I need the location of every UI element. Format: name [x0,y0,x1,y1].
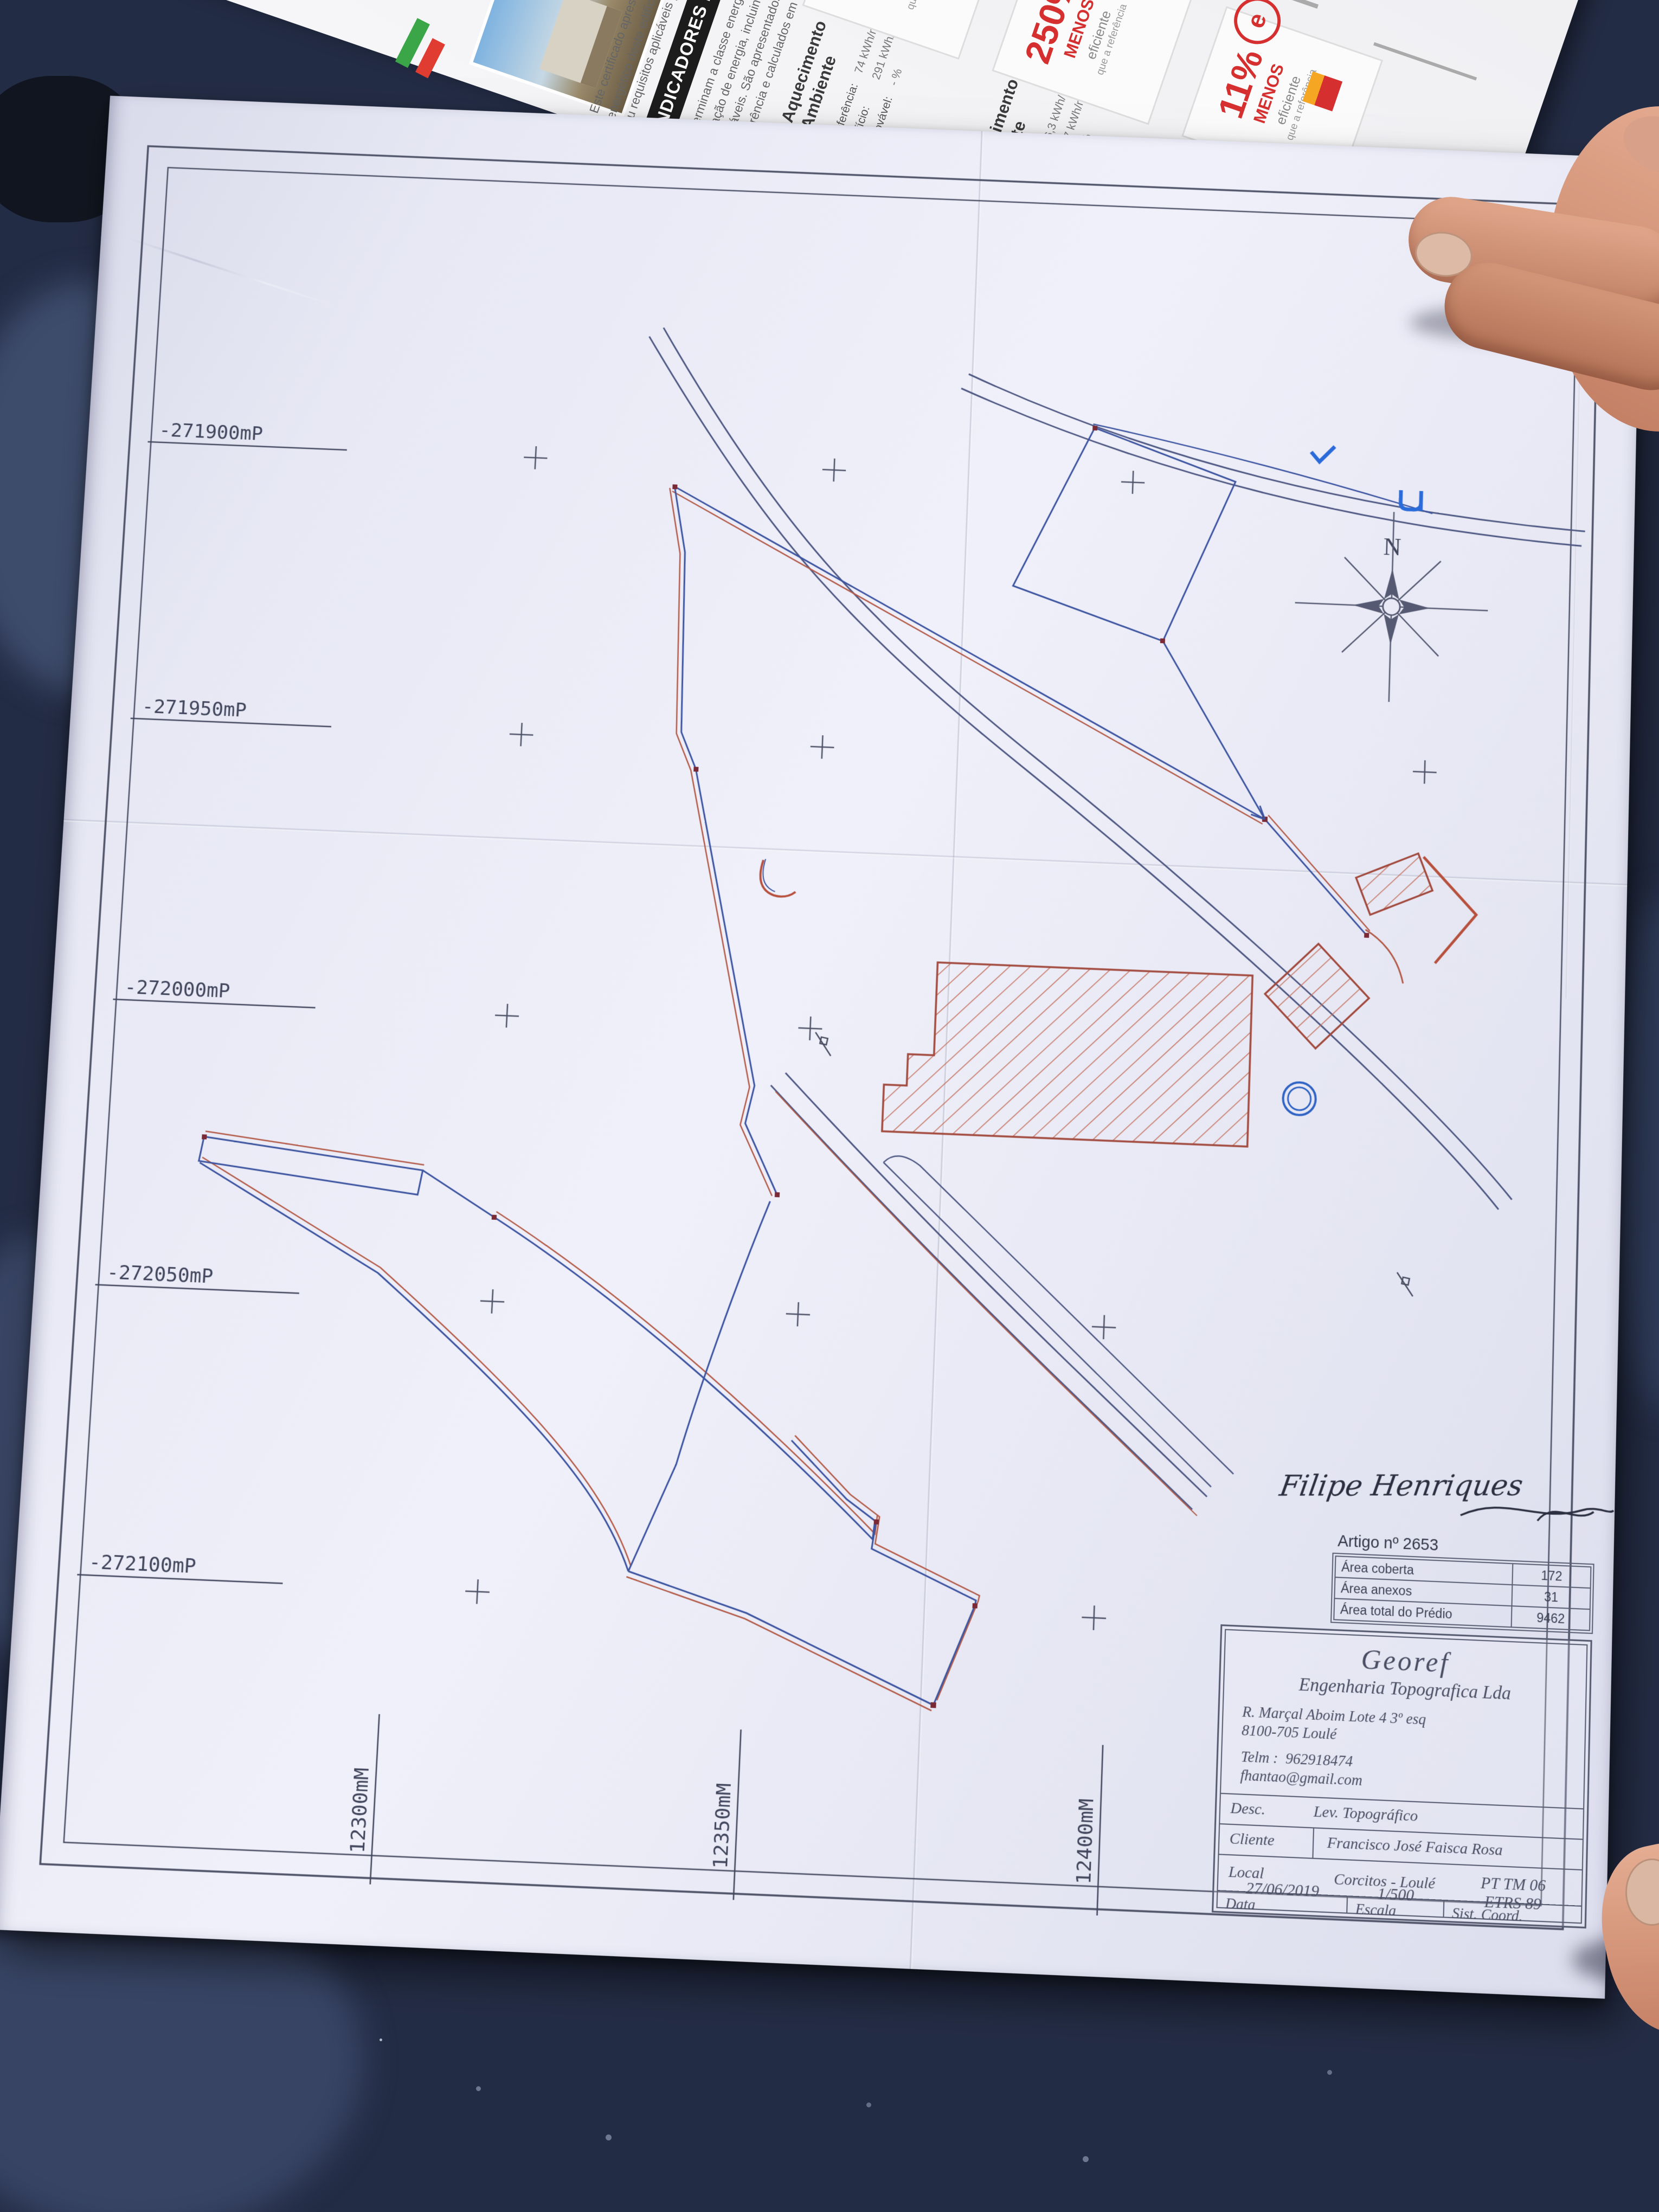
desc-value: Lev. Topográfico [1313,1803,1418,1826]
blue-u-mark [1400,490,1421,511]
escala-cell: Escala 1/500 [1347,1895,1444,1917]
signature-flourish [1461,1503,1613,1524]
grid-label-mm: 12400mM [1072,1798,1098,1885]
north-compass-rose: N [1292,508,1490,706]
red-segment [1364,930,1404,983]
data-cell: Data 27/06/2019 [1218,1890,1348,1913]
pole-symbol [814,1028,837,1057]
grid-label-mm: 12350mM [709,1783,736,1869]
renewable-value: - % [887,67,904,87]
road-red-companion [758,1091,1210,1516]
title-block: Georef Engenharia Topografica Lda R. Mar… [1212,1624,1592,1928]
cliente-label: Cliente [1219,1829,1313,1851]
phone-number: 962918474 [1285,1750,1353,1770]
coord-cell: Sist. Coord. PT TM 06 ETRS 89 [1444,1900,1581,1922]
grid-label-mp: -271950mP [142,695,247,722]
main-house-footprint [882,960,1252,1146]
coordinate-labels: -271900mP -271950mP -272000mP -272050mP … [59,419,1146,1915]
grid-label-mp: -272050mP [106,1261,214,1288]
pole-symbol [1395,1269,1418,1298]
cliente-value: Francisco José Faisca Rosa [1327,1834,1503,1860]
phone-label: Telm : [1240,1748,1278,1766]
surveyor-signature: Filipe Henriques [1277,1469,1623,1503]
road-lines [594,327,1589,1525]
well-circle [1283,1082,1316,1116]
annex-small-footprint [1355,851,1433,918]
grid-label-mp: -271900mP [158,419,263,445]
red-l-wall [1421,857,1478,965]
topographic-plan-sheet: -271900mP -271950mP -272000mP -272050mP … [0,96,1642,1999]
red-hook-line [760,859,797,897]
photo-scene: Este certificado apresenta a cl… energét… [0,0,1659,2212]
desc-label: Desc. [1220,1799,1314,1821]
grid-label-mm: 12300mM [346,1767,374,1854]
table-speck [380,2039,382,2041]
artigo-area-table: Área coberta 172 Área anexos 31 Área tot… [1333,1555,1591,1631]
grid-label-mp: -272100mP [88,1551,197,1578]
grid-label-mp: -272000mP [124,976,231,1002]
company-header: Georef Engenharia Topografica Lda R. Mar… [1221,1630,1586,1810]
blue-check-mark [1311,446,1335,462]
